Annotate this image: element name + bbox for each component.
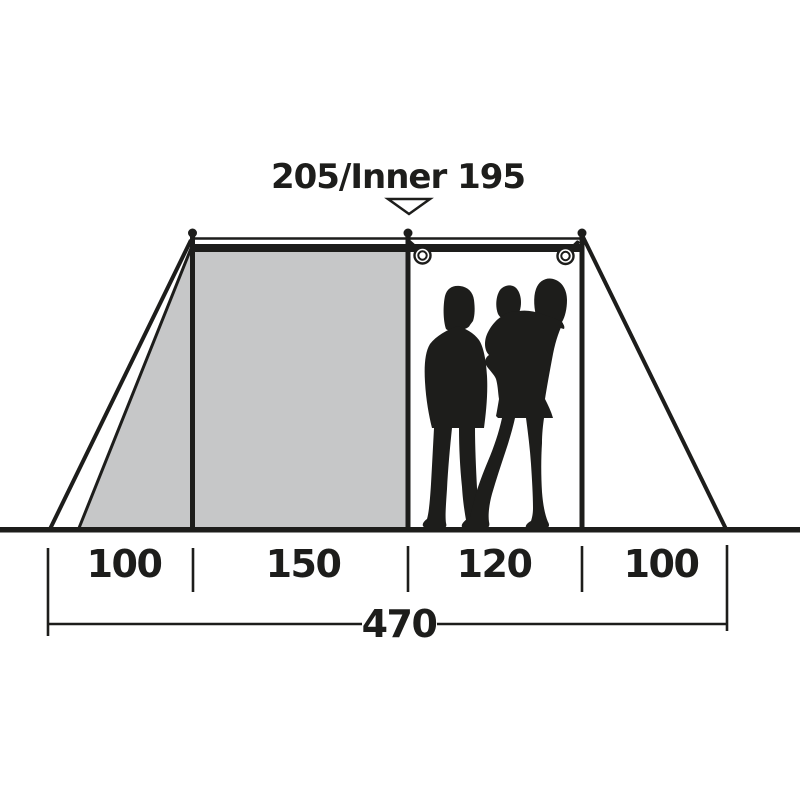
center-pole-cap xyxy=(404,229,413,238)
down-triangle-marker-icon xyxy=(388,199,430,214)
inner-tent-fill xyxy=(194,251,406,527)
adult-right-body-with-child xyxy=(485,311,563,418)
section-label-right-porch: 100 xyxy=(624,542,699,586)
roof-bar xyxy=(191,244,584,252)
right-grommet-ring-inner xyxy=(561,252,569,260)
left-pole-cap xyxy=(188,229,197,238)
dimension-annotations: 100 150 120 100 470 xyxy=(48,542,727,646)
family-silhouette xyxy=(423,278,567,528)
right-guy-line xyxy=(583,237,726,529)
adult-left-body xyxy=(425,326,488,428)
total-width-label: 470 xyxy=(362,602,437,646)
tent-structure xyxy=(50,229,726,531)
adult-left-head xyxy=(444,286,475,331)
tent-dimensions-figure: 205/Inner 195 xyxy=(0,0,800,800)
right-pole-cap xyxy=(578,229,587,238)
section-label-inner-tent: 150 xyxy=(266,542,341,586)
tent-dimension-diagram: 205/Inner 195 xyxy=(0,0,800,800)
section-label-living-area: 120 xyxy=(457,542,532,586)
section-label-left-porch: 100 xyxy=(87,542,162,586)
height-label: 205/Inner 195 xyxy=(271,157,525,197)
adult-right-leg-back xyxy=(526,418,549,528)
adult-left-leg-left xyxy=(423,428,452,528)
left-grommet-ring-inner xyxy=(418,251,426,259)
